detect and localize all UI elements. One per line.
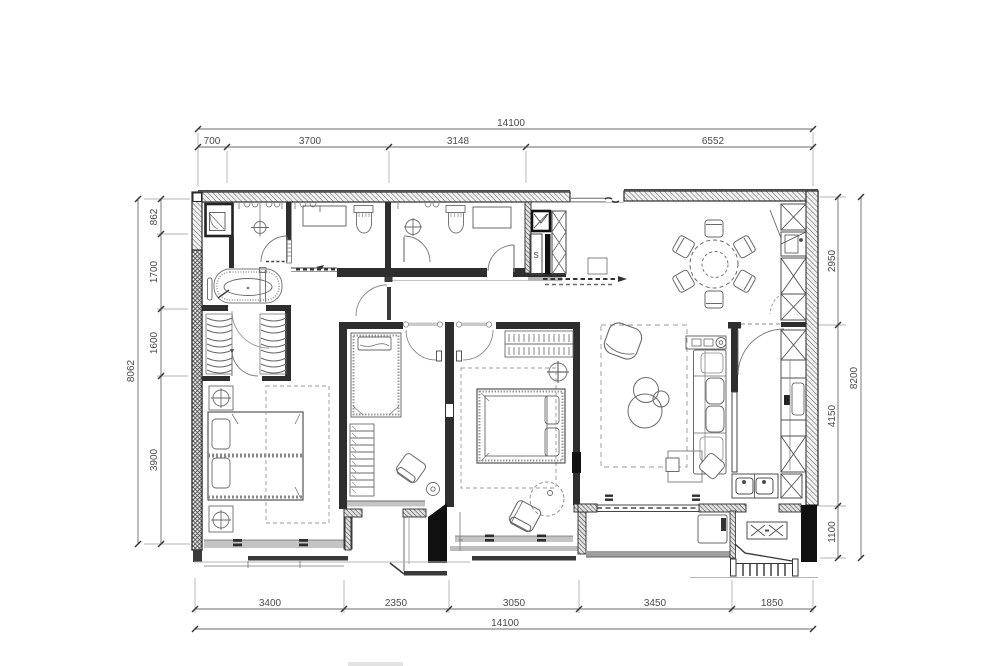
svg-text:3900: 3900	[149, 448, 160, 471]
svg-text:862: 862	[149, 208, 160, 225]
svg-text:3148: 3148	[447, 136, 470, 147]
svg-text:4150: 4150	[827, 404, 838, 427]
svg-text:3400: 3400	[259, 598, 282, 609]
svg-text:3450: 3450	[644, 598, 667, 609]
svg-text:1600: 1600	[149, 331, 160, 354]
svg-text:6552: 6552	[702, 136, 725, 147]
svg-text:14100: 14100	[497, 118, 525, 129]
svg-text:2350: 2350	[385, 598, 408, 609]
svg-text:700: 700	[204, 136, 221, 147]
svg-text:8062: 8062	[126, 359, 137, 382]
svg-text:S: S	[533, 251, 538, 260]
svg-text:1100: 1100	[827, 521, 838, 543]
svg-text:2950: 2950	[827, 249, 838, 272]
svg-text:1700: 1700	[149, 260, 160, 283]
svg-text:3050: 3050	[503, 598, 526, 609]
svg-text:1850: 1850	[761, 598, 784, 609]
svg-text:14100: 14100	[491, 618, 519, 629]
svg-text:8200: 8200	[849, 366, 860, 389]
svg-text:3700: 3700	[299, 136, 322, 147]
